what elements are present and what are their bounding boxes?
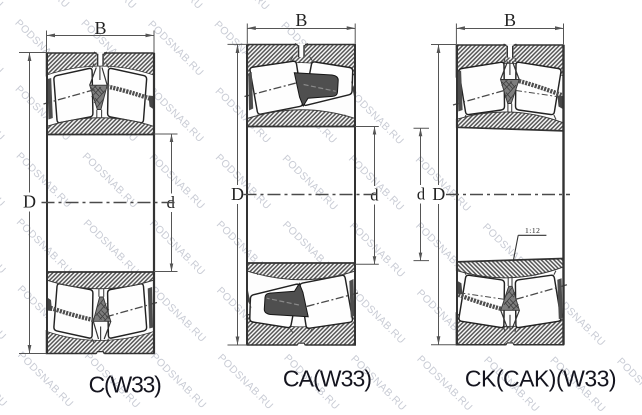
- svg-text:B: B: [94, 18, 106, 38]
- svg-text:D: D: [231, 184, 244, 204]
- svg-text:PODSNAB.RU: PODSNAB.RU: [0, 0, 6, 10]
- svg-text:CK(CAK)(W33): CK(CAK)(W33): [465, 366, 616, 392]
- svg-text:B: B: [504, 10, 516, 30]
- svg-text:C(W33): C(W33): [89, 372, 162, 398]
- svg-text:B: B: [295, 10, 307, 30]
- svg-text:D: D: [23, 192, 36, 212]
- svg-text:1:12: 1:12: [525, 226, 540, 235]
- svg-text:d: d: [417, 185, 426, 204]
- svg-text:CA(W33): CA(W33): [283, 366, 372, 392]
- svg-text:D: D: [432, 184, 445, 204]
